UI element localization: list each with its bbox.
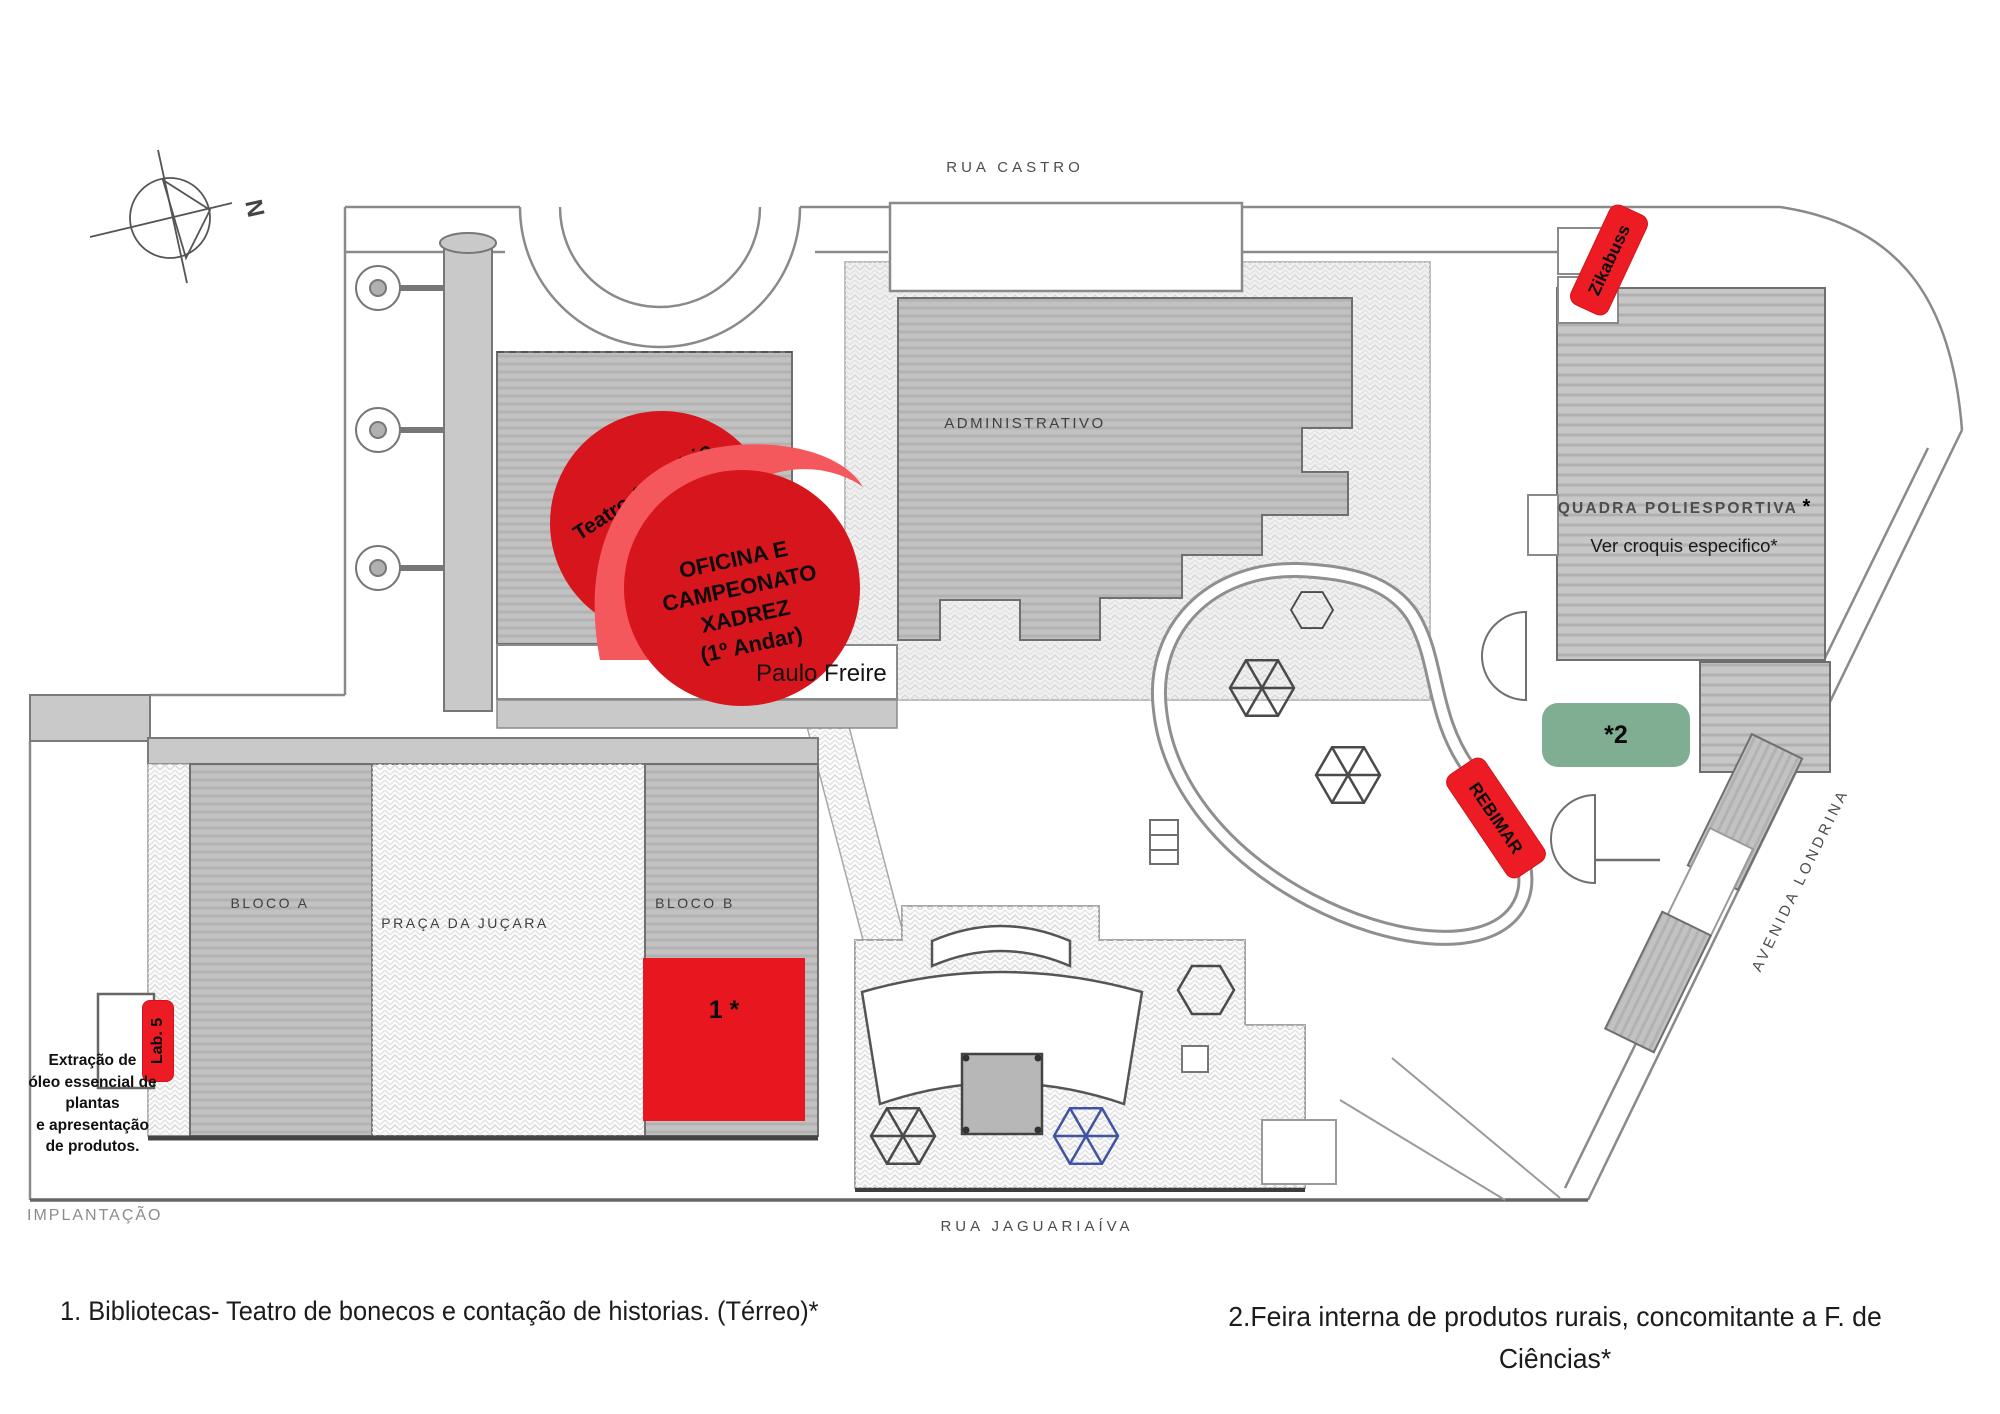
quadra-asterisk: * bbox=[1803, 496, 1811, 518]
legend-item-2-line1: 2.Feira interna de produtos rurais, conc… bbox=[1161, 1296, 1950, 1338]
extracao-line: e apresentação bbox=[5, 1115, 180, 1137]
building-label-bloco-a: BLOCO A bbox=[231, 895, 310, 911]
legend-item-2: 2.Feira interna de produtos rurais, conc… bbox=[1161, 1296, 1950, 1380]
school-name-label: Paulo Freire bbox=[756, 660, 887, 688]
legend-item-1: 1. Bibliotecas- Teatro de bonecos e cont… bbox=[60, 1296, 819, 1327]
building-label-quadra: QUADRA POLIESPORTIVA bbox=[1558, 500, 1798, 517]
compass-north-label: N bbox=[239, 197, 269, 220]
site-plan-drawing: N RUA CASTRO RUA JAGUARIAÍVA AVENIDA LON… bbox=[0, 0, 2000, 1414]
plan-title: IMPLANTAÇÃO bbox=[27, 1204, 163, 1224]
marker-1-label: 1 * bbox=[709, 996, 740, 1025]
extracao-line: plantas bbox=[5, 1093, 180, 1115]
street-label-bottom: RUA JAGUARIAÍVA bbox=[940, 1218, 1133, 1235]
extracao-line: óleo essencial de bbox=[5, 1072, 180, 1094]
building-label-praca: PRAÇA DA JUÇARA bbox=[381, 915, 548, 931]
left-round-structures bbox=[356, 233, 496, 711]
building-label-administrativo: ADMINISTRATIVO bbox=[944, 415, 1105, 432]
marker-2-area: *2 bbox=[1542, 703, 1690, 767]
street-label-top: RUA CASTRO bbox=[946, 159, 1084, 176]
marker-2-label: *2 bbox=[1604, 721, 1628, 750]
quadra-label-block: QUADRA POLIESPORTIVA * Ver croquis espec… bbox=[1548, 496, 1820, 557]
tree-icon bbox=[1316, 747, 1380, 802]
extracao-note: Extração de óleo essencial de plantas e … bbox=[5, 1050, 180, 1158]
marker-1-area: 1 * bbox=[643, 958, 805, 1121]
quadra-note: Ver croquis especifico* bbox=[1548, 535, 1820, 557]
extracao-line: de produtos. bbox=[5, 1136, 180, 1158]
left-wall-bar bbox=[30, 695, 150, 741]
extracao-line: Extração de bbox=[5, 1050, 180, 1072]
building-label-bloco-b: BLOCO B bbox=[655, 895, 735, 911]
building-entrance bbox=[890, 203, 1242, 291]
legend-item-2-line2: Ciências* bbox=[1161, 1338, 1950, 1380]
compass-icon: N bbox=[90, 150, 269, 283]
site-plan-page: N RUA CASTRO RUA JAGUARIAÍVA AVENIDA LON… bbox=[0, 0, 2000, 1414]
